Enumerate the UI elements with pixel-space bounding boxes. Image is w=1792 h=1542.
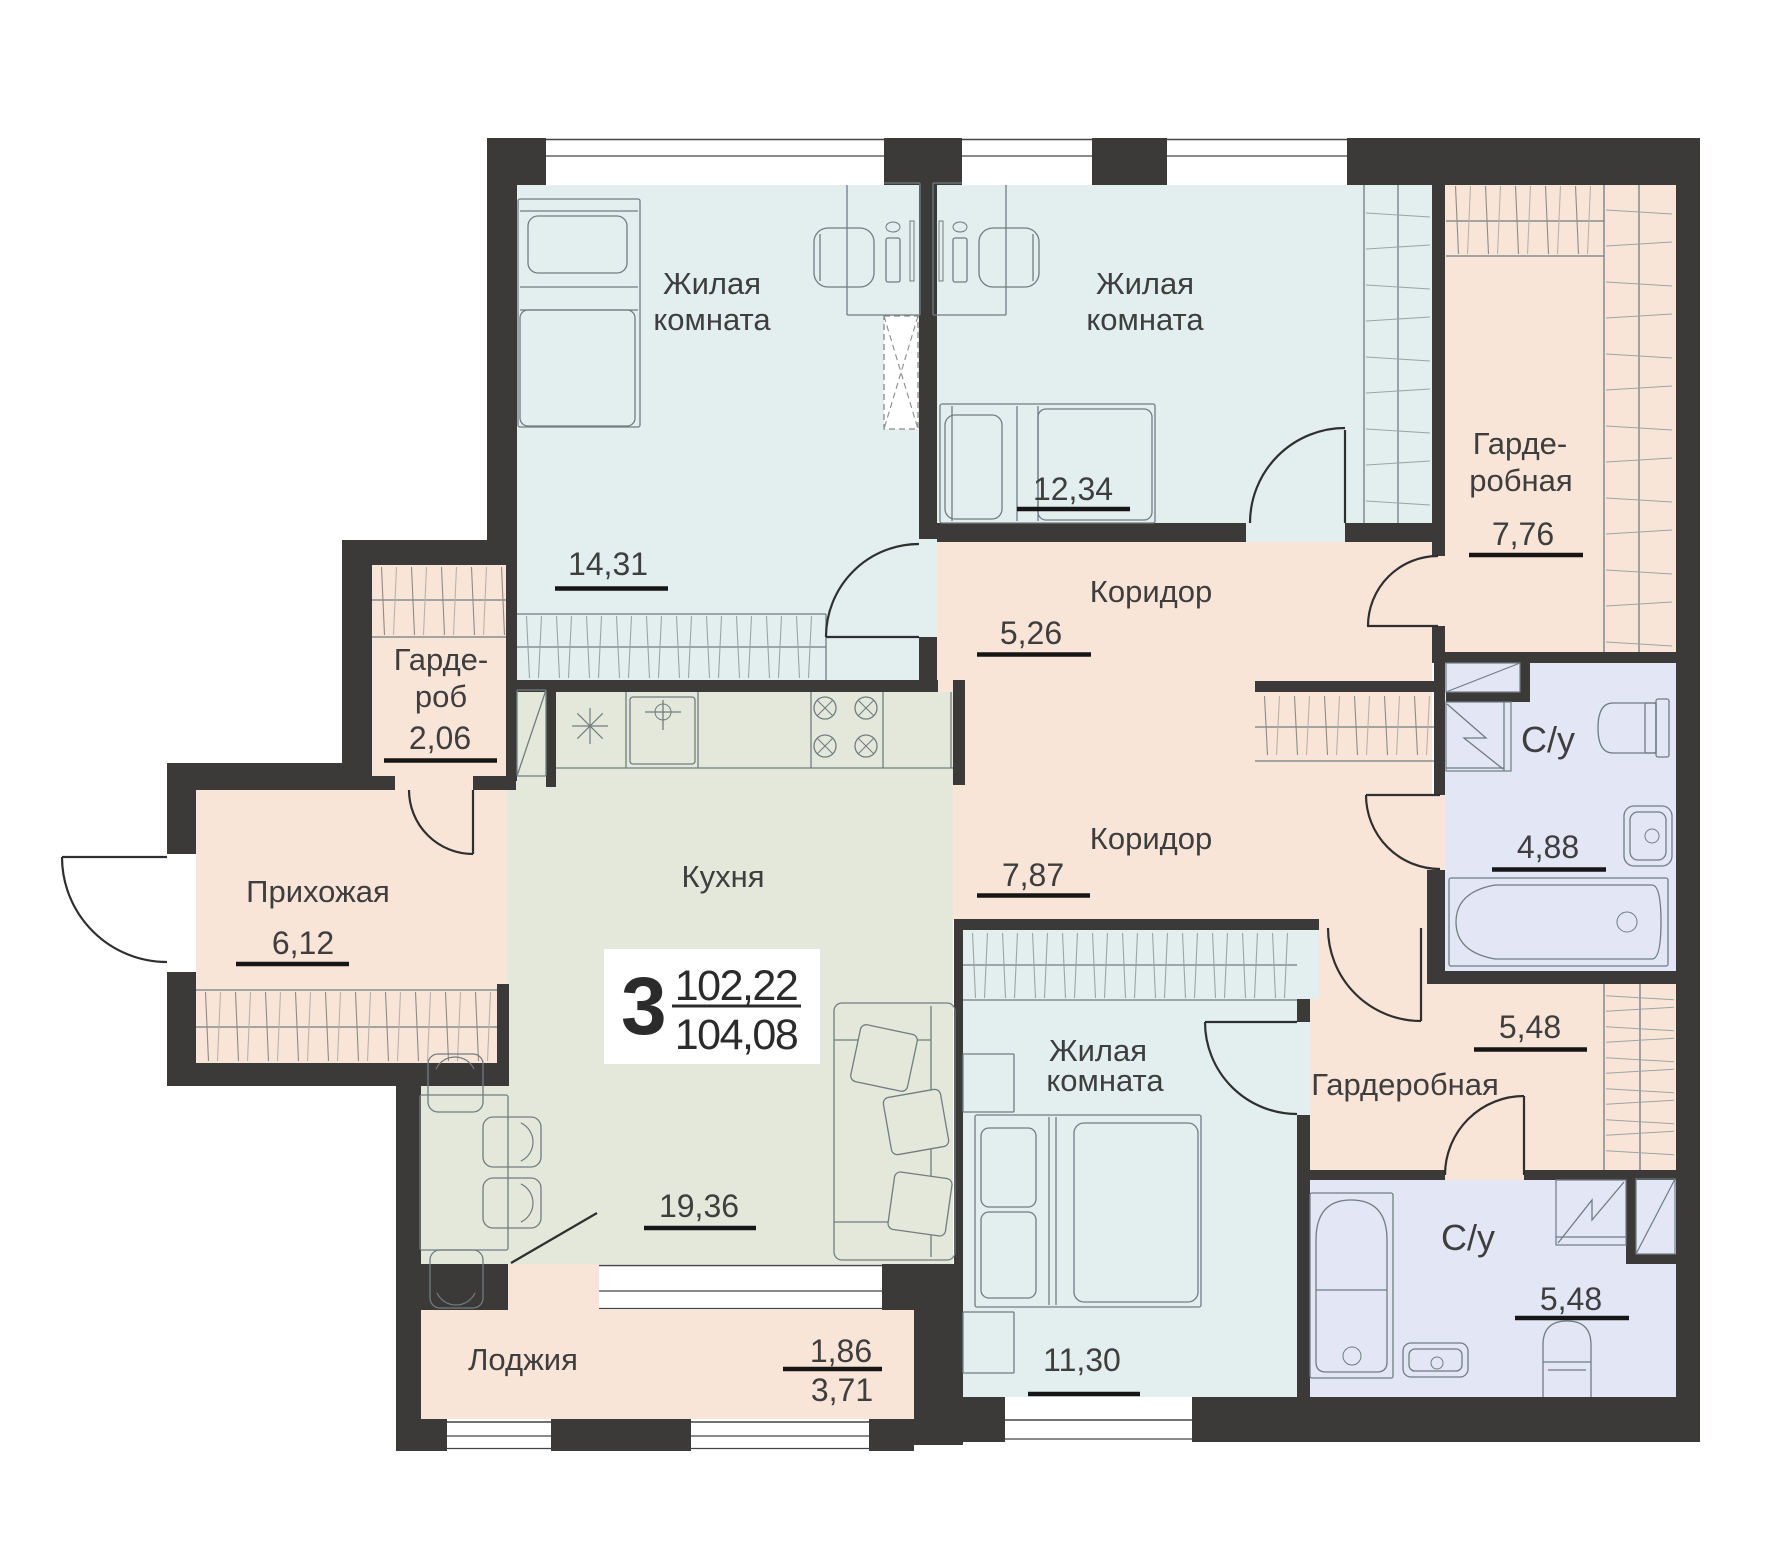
svg-text:19,36: 19,36 [659,1188,739,1224]
svg-text:Жилая: Жилая [1096,266,1194,301]
svg-text:Жилая: Жилая [663,266,761,301]
svg-text:робная: робная [1469,463,1572,498]
svg-text:Гарде-: Гарде- [1473,426,1567,461]
svg-text:7,87: 7,87 [1002,857,1064,893]
svg-text:Лоджия: Лоджия [468,1342,578,1377]
svg-text:6,12: 6,12 [272,925,334,961]
svg-text:1,86: 1,86 [810,1333,872,1369]
svg-text:Кухня: Кухня [682,859,765,894]
svg-text:2,06: 2,06 [409,720,471,756]
svg-text:комната: комната [653,302,771,337]
svg-text:14,31: 14,31 [568,546,648,582]
svg-text:Коридор: Коридор [1090,574,1212,609]
svg-text:3: 3 [621,961,667,1052]
svg-text:5,48: 5,48 [1499,1009,1561,1045]
svg-text:12,34: 12,34 [1033,471,1113,507]
svg-text:104,08: 104,08 [675,1011,798,1059]
svg-text:Гардеробная: Гардеробная [1311,1067,1499,1102]
svg-text:3,71: 3,71 [811,1372,873,1408]
svg-text:комната: комната [1046,1063,1164,1098]
svg-text:7,76: 7,76 [1492,516,1554,552]
svg-text:11,30: 11,30 [1043,1342,1121,1378]
svg-text:5,26: 5,26 [1000,615,1062,651]
svg-text:Коридор: Коридор [1090,821,1212,856]
svg-text:Прихожая: Прихожая [246,874,390,909]
svg-text:Гарде-: Гарде- [394,642,488,677]
svg-text:102,22: 102,22 [675,962,798,1010]
svg-text:роб: роб [415,679,467,714]
svg-text:4,88: 4,88 [1517,829,1579,865]
svg-text:комната: комната [1086,302,1204,337]
svg-text:С/у: С/у [1441,1217,1495,1258]
svg-text:5,48: 5,48 [1540,1281,1602,1317]
svg-text:С/у: С/у [1521,719,1575,760]
